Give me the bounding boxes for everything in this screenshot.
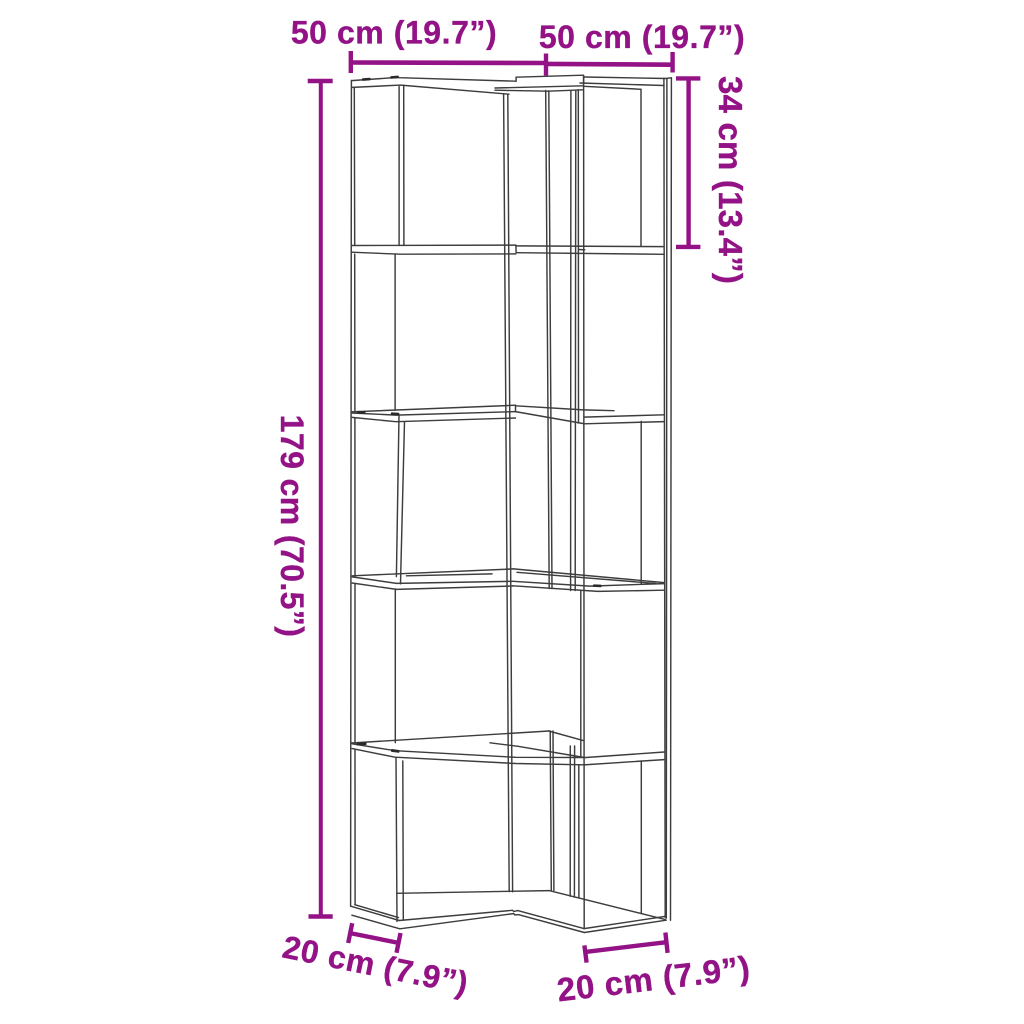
svg-text:34 cm (13.4”): 34 cm (13.4”)	[712, 76, 749, 284]
svg-text:50 cm (19.7”): 50 cm (19.7”)	[291, 15, 497, 51]
svg-text:179 cm (70.5”): 179 cm (70.5”)	[274, 415, 310, 638]
svg-text:50 cm (19.7”): 50 cm (19.7”)	[539, 19, 745, 55]
